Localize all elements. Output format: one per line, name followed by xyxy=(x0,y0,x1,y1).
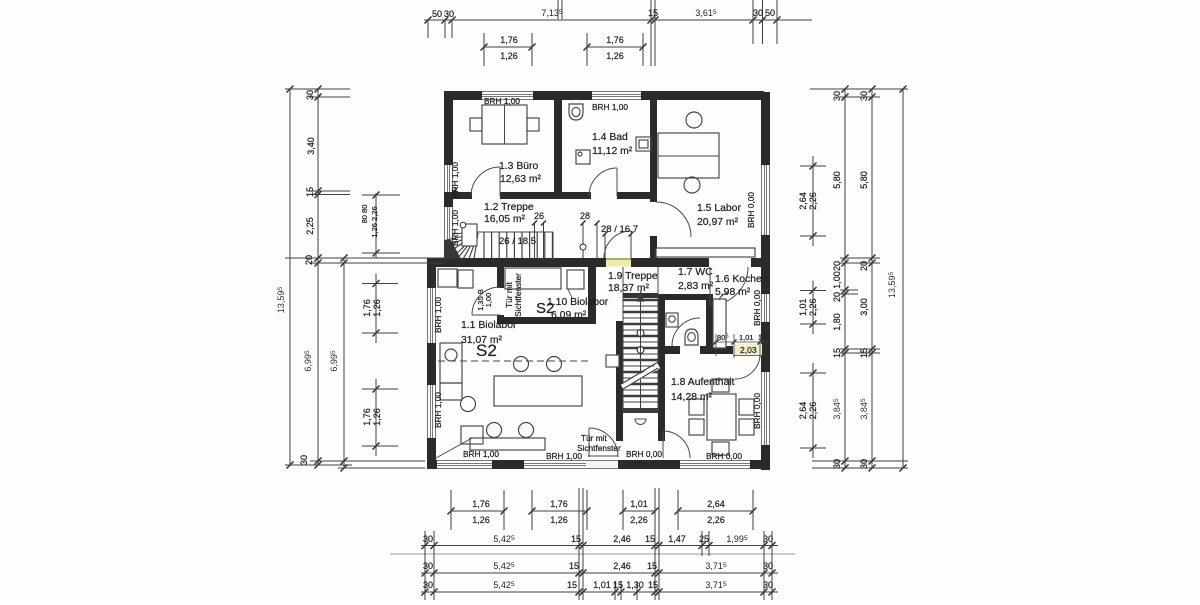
svg-text:1,26: 1,26 xyxy=(550,515,568,525)
svg-text:25: 25 xyxy=(699,534,709,544)
svg-text:BRH 1,00: BRH 1,00 xyxy=(463,449,499,459)
svg-text:18,37 m²: 18,37 m² xyxy=(608,283,650,294)
svg-text:1.4 Bad: 1.4 Bad xyxy=(592,132,628,143)
svg-text:S2: S2 xyxy=(476,341,497,360)
svg-text:2,26: 2,26 xyxy=(808,402,818,420)
svg-text:15: 15 xyxy=(569,561,579,571)
svg-text:20: 20 xyxy=(832,292,842,302)
svg-text:BRH 1,00: BRH 1,00 xyxy=(433,392,443,428)
svg-text:1,26: 1,26 xyxy=(372,408,382,426)
svg-text:2,64: 2,64 xyxy=(798,192,808,210)
svg-text:1.2 Treppe: 1.2 Treppe xyxy=(484,202,534,213)
svg-text:50: 50 xyxy=(432,9,442,19)
svg-text:15: 15 xyxy=(567,580,577,590)
svg-text:50: 50 xyxy=(765,8,775,18)
svg-text:BRH 0,00: BRH 0,00 xyxy=(752,290,762,326)
svg-text:BRH 0,00: BRH 0,00 xyxy=(752,393,762,429)
svg-text:15: 15 xyxy=(645,534,655,544)
svg-text:1,76: 1,76 xyxy=(362,299,372,317)
svg-text:1,26: 1,26 xyxy=(472,515,490,525)
svg-text:15: 15 xyxy=(647,561,657,571)
svg-text:1.9 Treppe: 1.9 Treppe xyxy=(608,271,658,282)
svg-text:1,00: 1,00 xyxy=(832,271,842,289)
svg-text:BRH 1,00: BRH 1,00 xyxy=(433,297,443,333)
svg-text:16,05 m²: 16,05 m² xyxy=(484,214,526,225)
svg-text:1.5 Labor: 1.5 Labor xyxy=(697,203,741,214)
svg-text:80: 80 xyxy=(450,187,459,195)
svg-text:30: 30 xyxy=(305,90,315,100)
svg-text:1,00: 1,00 xyxy=(484,293,493,308)
svg-text:26: 26 xyxy=(534,211,544,221)
svg-text:26 / 18,5: 26 / 18,5 xyxy=(499,236,536,247)
svg-text:1.10 Biolabor: 1.10 Biolabor xyxy=(547,297,609,308)
svg-text:30: 30 xyxy=(444,9,454,19)
svg-text:Sichtfenster: Sichtfenster xyxy=(577,443,621,453)
svg-text:30: 30 xyxy=(423,580,433,590)
svg-text:5,80: 5,80 xyxy=(859,171,869,189)
svg-text:1.6 Kochen: 1.6 Kochen xyxy=(715,274,768,285)
svg-text:BRH 0,00: BRH 0,00 xyxy=(746,192,756,228)
svg-text:Sichtfenster: Sichtfenster xyxy=(513,273,523,317)
svg-text:20: 20 xyxy=(859,261,869,271)
svg-text:3,00: 3,00 xyxy=(859,298,869,316)
svg-text:1,01: 1,01 xyxy=(593,580,611,590)
svg-text:2,03: 2,03 xyxy=(740,345,757,355)
svg-text:1,47: 1,47 xyxy=(668,534,686,544)
svg-text:15: 15 xyxy=(648,580,658,590)
svg-text:28: 28 xyxy=(580,211,590,221)
svg-text:BRH 0,00: BRH 0,00 xyxy=(706,451,742,461)
svg-text:80 80: 80 80 xyxy=(360,205,369,224)
svg-text:2,46: 2,46 xyxy=(613,534,631,544)
svg-text:5: 5 xyxy=(726,334,729,340)
svg-text:6,09 m²: 6,09 m² xyxy=(551,310,587,321)
svg-text:2,26: 2,26 xyxy=(707,515,725,525)
svg-text:30: 30 xyxy=(423,561,433,571)
svg-text:1,26: 1,26 xyxy=(372,299,382,317)
svg-text:2,64: 2,64 xyxy=(798,402,808,420)
svg-text:30: 30 xyxy=(299,455,309,465)
svg-text:1,01: 1,01 xyxy=(798,298,808,316)
svg-text:BRH 1,00: BRH 1,00 xyxy=(592,102,628,112)
svg-text:12,63 m²: 12,63 m² xyxy=(500,174,542,185)
svg-text:5,80: 5,80 xyxy=(832,171,842,189)
svg-text:30: 30 xyxy=(832,459,842,469)
svg-text:30: 30 xyxy=(763,561,773,571)
svg-text:1,80: 1,80 xyxy=(832,313,842,331)
svg-text:1,26: 1,26 xyxy=(606,51,624,61)
svg-text:20: 20 xyxy=(304,255,314,265)
svg-text:2,26: 2,26 xyxy=(808,192,818,210)
svg-text:30: 30 xyxy=(423,534,433,544)
svg-text:1.8 Aufenthalt: 1.8 Aufenthalt xyxy=(671,377,735,388)
svg-text:1.3 Büro: 1.3 Büro xyxy=(499,161,539,172)
svg-text:BRH 0,00: BRH 0,00 xyxy=(626,449,662,459)
svg-text:15: 15 xyxy=(859,348,869,358)
svg-text:11,12 m²: 11,12 m² xyxy=(592,146,633,157)
svg-text:1.1 Biolabor: 1.1 Biolabor xyxy=(461,320,517,331)
svg-text:30: 30 xyxy=(832,91,842,101)
svg-text:1,76: 1,76 xyxy=(472,499,490,509)
svg-text:1,26: 1,26 xyxy=(500,51,518,61)
svg-text:2,64: 2,64 xyxy=(707,499,725,509)
svg-text:2,26: 2,26 xyxy=(808,298,818,316)
svg-text:20: 20 xyxy=(832,261,842,271)
svg-text:15: 15 xyxy=(648,8,658,18)
svg-text:15: 15 xyxy=(832,348,842,358)
svg-text:15: 15 xyxy=(571,534,581,544)
svg-text:2,46: 2,46 xyxy=(613,561,631,571)
svg-text:15: 15 xyxy=(613,580,623,590)
svg-text:1,26 2,26: 1,26 2,26 xyxy=(370,206,379,237)
svg-text:3,40: 3,40 xyxy=(306,137,316,155)
svg-text:2,26: 2,26 xyxy=(630,515,648,525)
svg-text:2,83 m²: 2,83 m² xyxy=(678,281,714,292)
svg-text:1,30: 1,30 xyxy=(626,580,644,590)
svg-text:30: 30 xyxy=(763,580,773,590)
svg-text:1,76: 1,76 xyxy=(500,35,518,45)
svg-text:BRH 1,00: BRH 1,00 xyxy=(484,96,520,106)
svg-text:1.7 WC: 1.7 WC xyxy=(678,267,713,278)
svg-text:1,76: 1,76 xyxy=(362,408,372,426)
svg-text:1,76: 1,76 xyxy=(606,35,624,45)
svg-text:30: 30 xyxy=(763,534,773,544)
svg-text:1,76: 1,76 xyxy=(550,499,568,509)
svg-text:30: 30 xyxy=(859,91,869,101)
svg-text:20,97 m²: 20,97 m² xyxy=(697,217,739,228)
svg-text:30: 30 xyxy=(859,459,869,469)
svg-text:5,98 m²: 5,98 m² xyxy=(715,287,751,298)
svg-text:14,28 m²: 14,28 m² xyxy=(671,392,713,403)
svg-text:1,01: 1,01 xyxy=(739,333,754,342)
svg-text:BRH 1,00: BRH 1,00 xyxy=(450,210,460,246)
svg-text:2,25: 2,25 xyxy=(305,217,315,235)
svg-text:15: 15 xyxy=(305,187,315,197)
svg-text:30: 30 xyxy=(753,8,763,18)
svg-text:Tür mit: Tür mit xyxy=(581,433,608,443)
svg-text:1,01: 1,01 xyxy=(630,499,648,509)
